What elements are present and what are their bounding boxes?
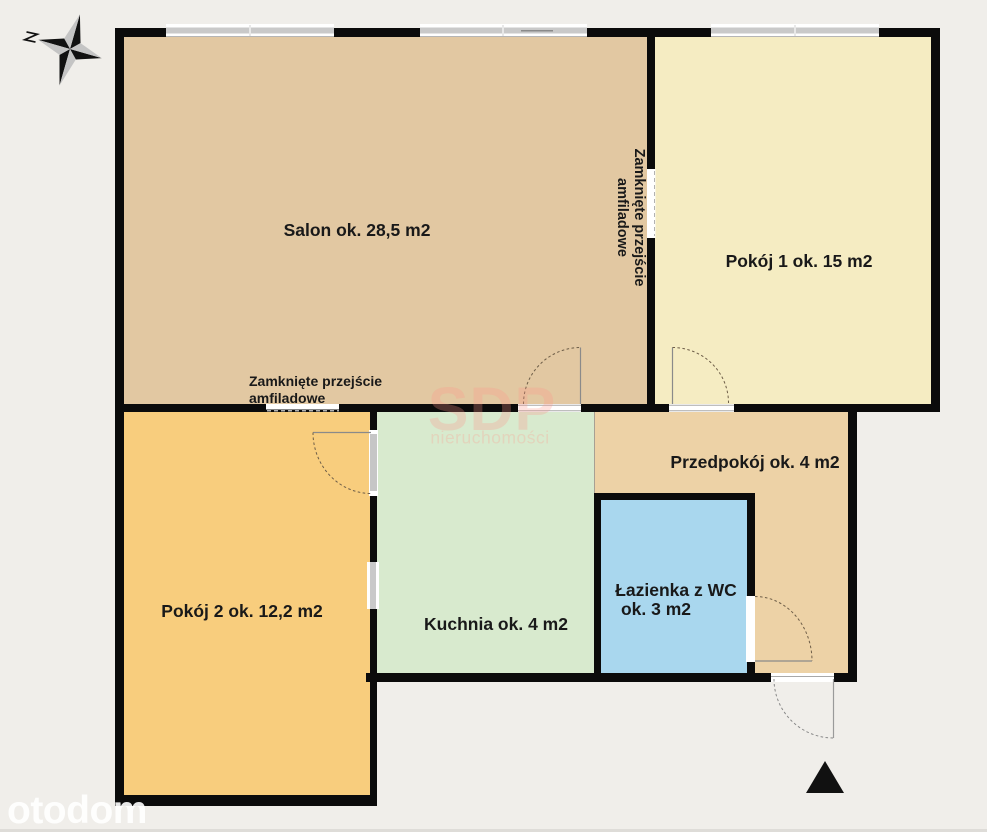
svg-text:Pokój 1 ok. 15 m2: Pokój 1 ok. 15 m2 xyxy=(726,251,873,271)
svg-text:Przedpokój ok. 4 m2: Przedpokój ok. 4 m2 xyxy=(670,452,839,472)
svg-text:Salon ok. 28,5 m2: Salon ok. 28,5 m2 xyxy=(284,220,431,240)
svg-text:otodom: otodom xyxy=(7,789,147,832)
svg-text:amfiladowe: amfiladowe xyxy=(249,390,325,406)
svg-text:nieruchomości: nieruchomości xyxy=(430,428,549,448)
svg-text:Zamknięte przejście: Zamknięte przejście xyxy=(249,373,382,389)
svg-text:amfiladowe: amfiladowe xyxy=(614,178,630,257)
svg-text:Łazienka z WC: Łazienka z WC xyxy=(615,580,737,600)
svg-text:Kuchnia ok. 4 m2: Kuchnia ok. 4 m2 xyxy=(424,614,568,634)
svg-text:Zamknięte przejście: Zamknięte przejście xyxy=(631,149,647,287)
svg-text:ok. 3 m2: ok. 3 m2 xyxy=(621,599,691,619)
svg-text:Pokój 2 ok. 12,2 m2: Pokój 2 ok. 12,2 m2 xyxy=(161,601,323,621)
